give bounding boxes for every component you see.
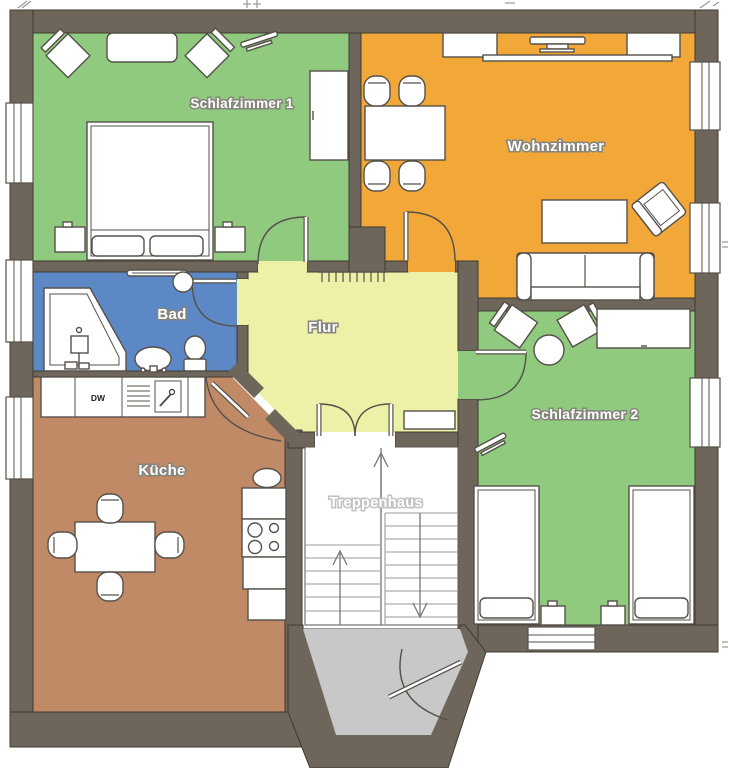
dresser-icon [107, 33, 177, 62]
single-bed-icon [474, 486, 539, 624]
double-bed-icon [87, 122, 213, 260]
wall-sz2-left-upper [458, 261, 478, 351]
window-sz2-bottom [528, 627, 595, 650]
pillow-icon [480, 598, 533, 618]
window-sz1-left [6, 103, 33, 183]
kitchen-chair-icon [155, 532, 184, 558]
room-label-schlafzimmer-1: Schlafzimmer 1 [190, 96, 293, 111]
room-label-schlafzimmer-2: Schlafzimmer 2 [532, 406, 639, 422]
sideboard-icon [404, 411, 455, 429]
wall-top [10, 10, 718, 33]
dishwasher-label: DW [91, 393, 106, 403]
window-kueche-left [6, 397, 33, 479]
coffee-table-icon [542, 200, 627, 243]
wall-divider-jamb [349, 227, 385, 272]
floor-plan-canvas: Schlafzimmer 1 Wohnzimmer Bad Flur Küche… [0, 0, 729, 768]
basin-icon [253, 469, 281, 488]
window-bad-left [6, 260, 33, 342]
dining-table-icon [365, 106, 445, 160]
toilet-icon [184, 336, 206, 371]
room-label-treppenhaus: Treppenhaus [329, 495, 423, 511]
kitchen-unit-icon [248, 589, 286, 620]
round-table-icon [534, 335, 564, 365]
kitchen-chair-icon [97, 572, 123, 601]
kitchen-unit-icon [243, 557, 286, 589]
kitchen-table-icon [75, 522, 155, 572]
dining-chair-icon [399, 161, 425, 191]
kitchen-chair-icon [97, 494, 123, 523]
dining-chair-icon [399, 76, 425, 106]
dining-chair-icon [364, 161, 390, 191]
stove-icon [242, 519, 286, 557]
pillow-icon [635, 598, 688, 618]
wardrobe-icon [310, 71, 348, 160]
room-label-flur: Flur [308, 319, 338, 336]
washbasin-icon [135, 347, 171, 372]
window-wz-right-2 [690, 203, 720, 273]
wall-bad-right-upper [237, 272, 248, 279]
kitchen-chair-icon [48, 532, 77, 558]
sideboard-icon [443, 33, 497, 57]
kitchen-unit-icon [242, 488, 286, 519]
wall-flur-bottom-2 [395, 432, 458, 448]
kitchen-counter-icon [41, 377, 205, 417]
pillow-icon [150, 236, 203, 256]
room-label-bad: Bad [157, 306, 186, 323]
nightstand-icon [55, 222, 85, 252]
room-label-kueche: Küche [138, 462, 185, 479]
wall-bottom-left [10, 712, 302, 747]
wall-bad-kueche [33, 371, 248, 377]
window-sz2-right [690, 378, 720, 447]
nightstand-icon [215, 222, 245, 252]
room-label-wohnzimmer: Wohnzimmer [508, 138, 605, 155]
sofa-icon [517, 253, 654, 300]
desk-icon [597, 309, 690, 348]
single-bed-icon [629, 486, 694, 624]
window-wz-right-1 [690, 62, 720, 130]
floor-plan: Schlafzimmer 1 Wohnzimmer Bad Flur Küche… [0, 0, 729, 768]
ceiling-light-icon [173, 272, 193, 292]
sideboard-icon [627, 33, 680, 57]
pillow-icon [92, 236, 144, 256]
media-shelf-icon [483, 55, 672, 61]
dining-chair-icon [364, 76, 390, 106]
wall-divider-sz1-wz [349, 33, 361, 227]
room-floor-flur [243, 272, 458, 432]
